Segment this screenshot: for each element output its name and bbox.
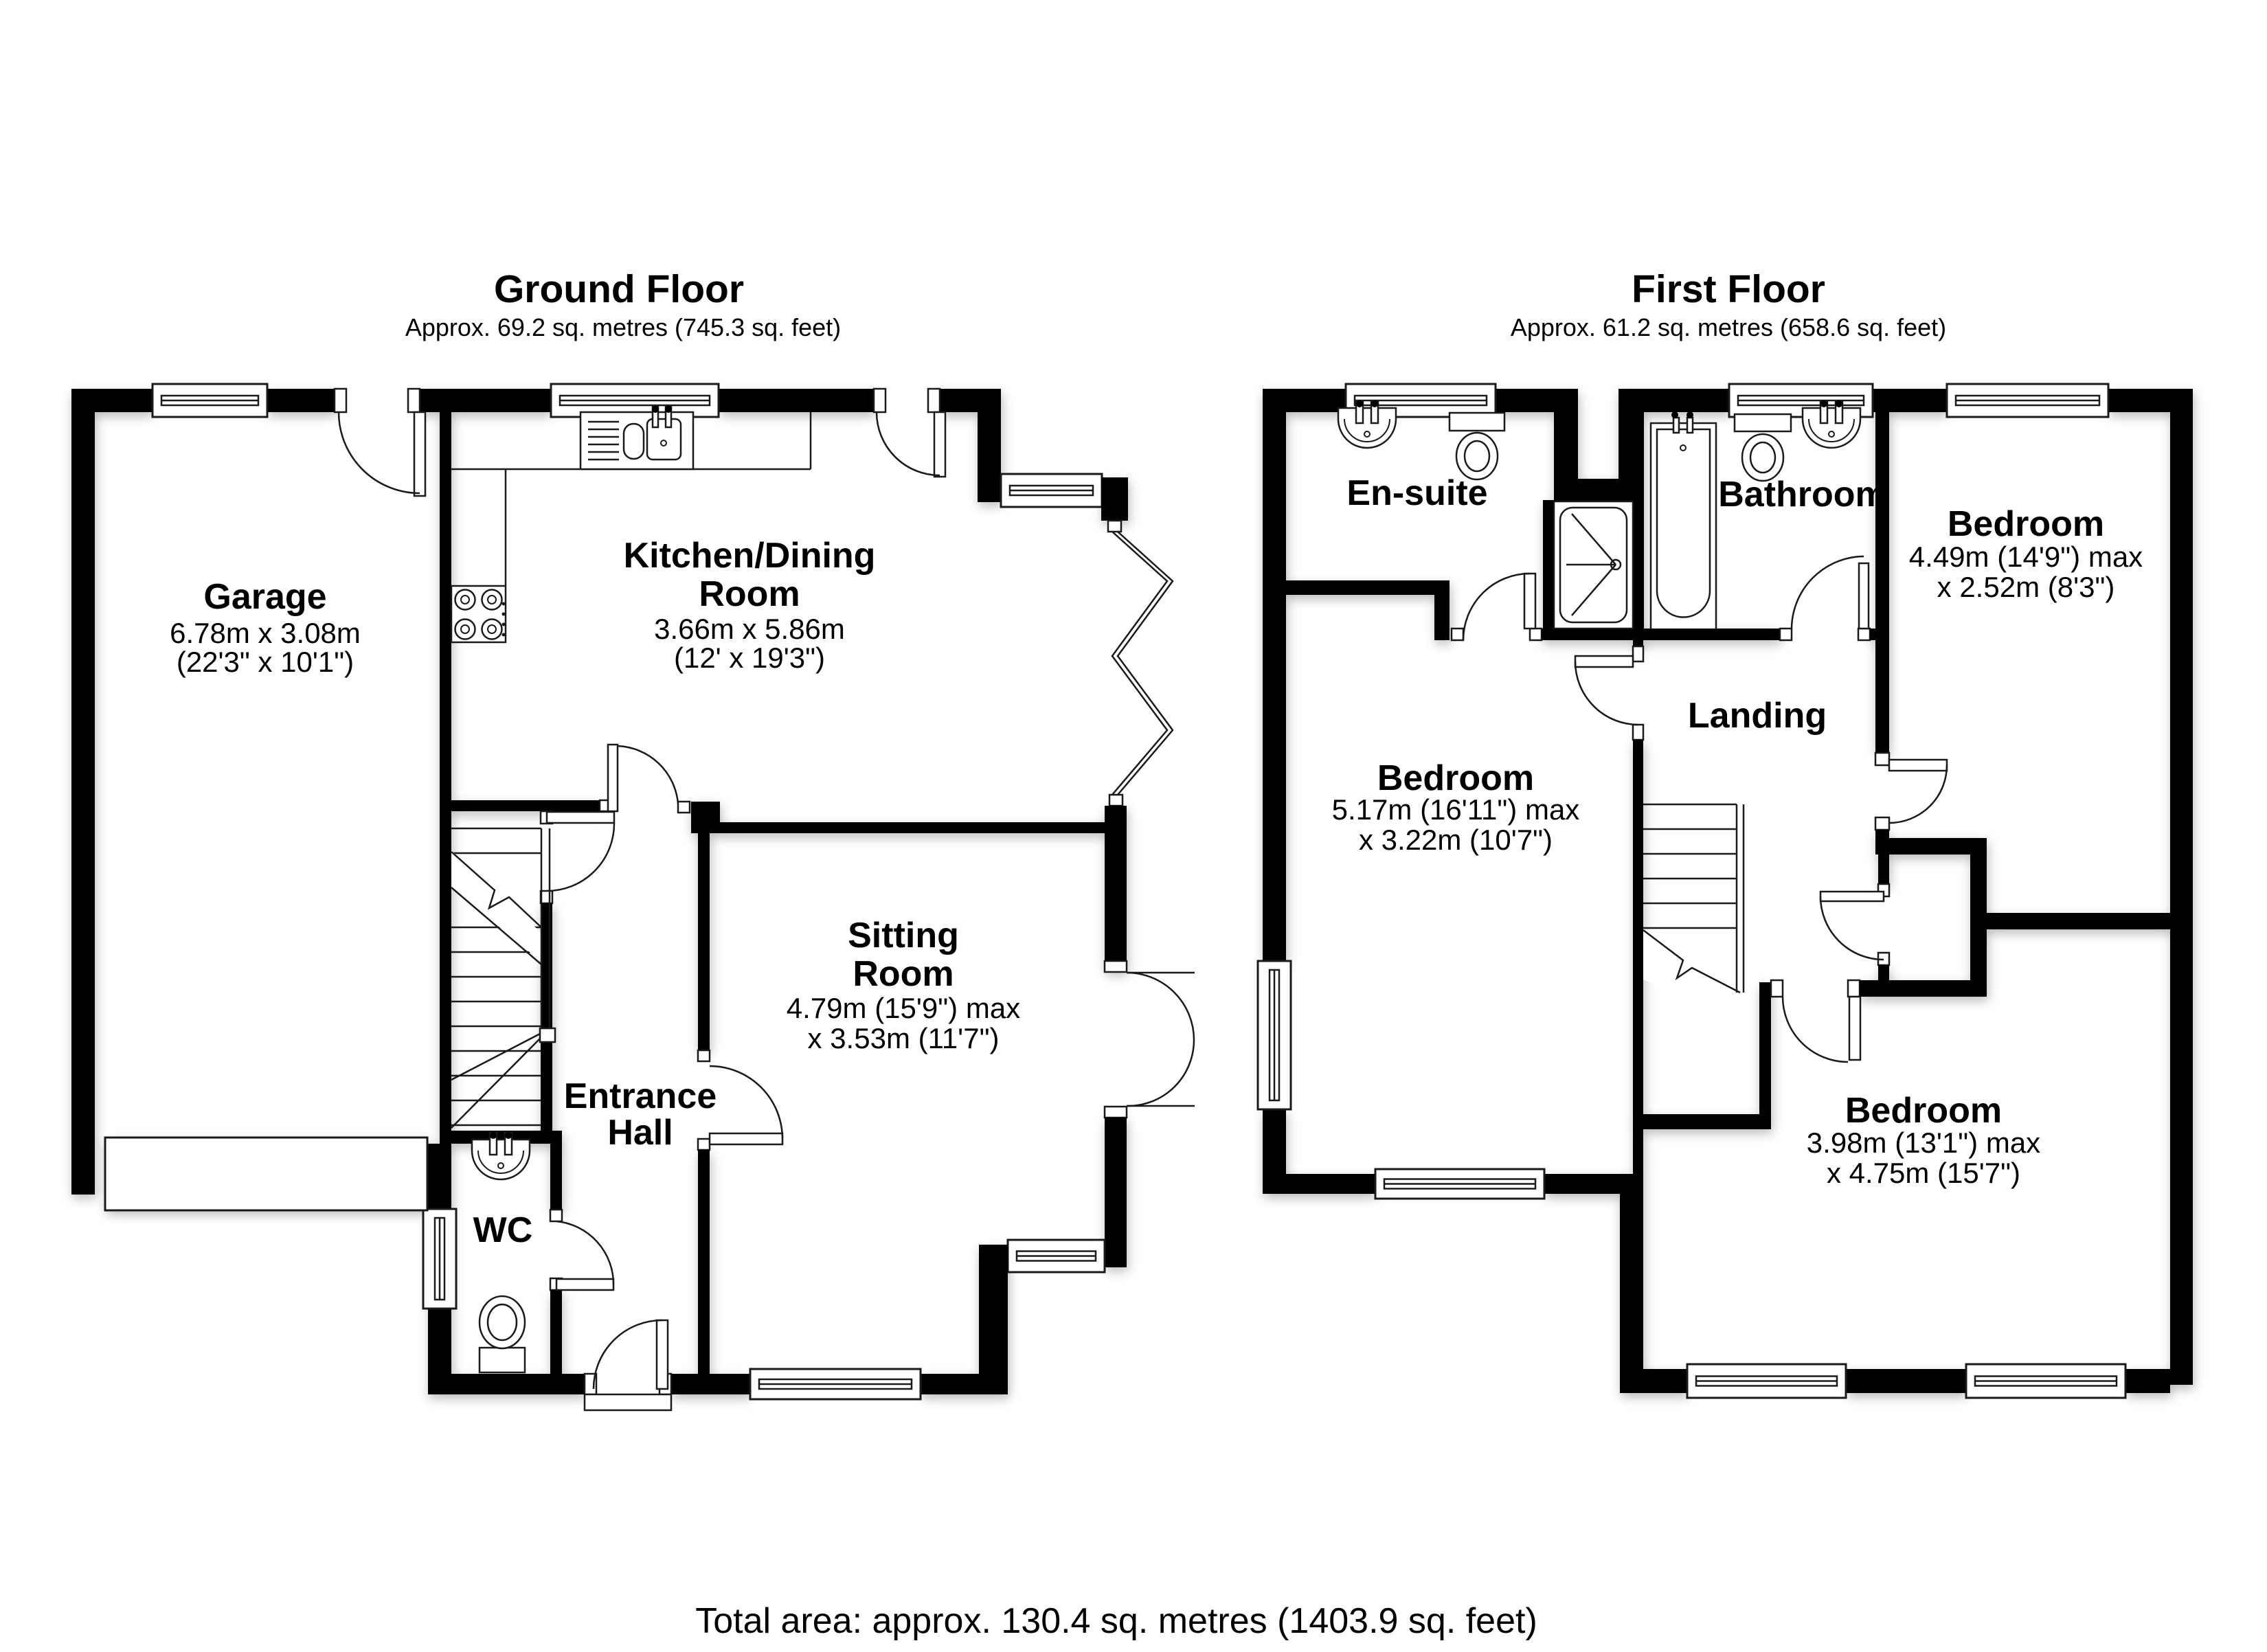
- svg-text:En-suite: En-suite: [1346, 473, 1487, 513]
- svg-text:x 2.52m (8'3"): x 2.52m (8'3"): [1937, 571, 2115, 603]
- svg-text:WC: WC: [473, 1210, 533, 1250]
- svg-text:Bedroom: Bedroom: [1948, 504, 2104, 544]
- svg-text:(12' x 19'3"): (12' x 19'3"): [674, 642, 825, 674]
- svg-text:Room: Room: [853, 954, 954, 994]
- svg-text:Hall: Hall: [607, 1113, 673, 1153]
- svg-text:3.98m (13'1") max: 3.98m (13'1") max: [1807, 1127, 2040, 1159]
- svg-text:Room: Room: [699, 574, 800, 614]
- svg-text:First Floor: First Floor: [1632, 267, 1825, 311]
- svg-text:4.79m (15'9") max: 4.79m (15'9") max: [787, 992, 1020, 1024]
- svg-text:Ground Floor: Ground Floor: [494, 267, 744, 311]
- svg-text:Entrance: Entrance: [564, 1076, 717, 1116]
- svg-text:Landing: Landing: [1688, 696, 1827, 736]
- svg-text:Bathroom: Bathroom: [1718, 475, 1887, 514]
- svg-text:x 3.22m (10'7"): x 3.22m (10'7"): [1359, 824, 1553, 856]
- svg-text:Kitchen/Dining: Kitchen/Dining: [624, 536, 876, 576]
- svg-text:5.17m (16'11") max: 5.17m (16'11") max: [1332, 793, 1580, 826]
- svg-text:Approx. 69.2 sq. metres (745.3: Approx. 69.2 sq. metres (745.3 sq. feet): [405, 313, 841, 341]
- svg-text:Sitting: Sitting: [848, 916, 959, 955]
- svg-text:Bedroom: Bedroom: [1377, 758, 1534, 798]
- svg-text:(22'3" x 10'1"): (22'3" x 10'1"): [177, 646, 354, 678]
- svg-text:x 4.75m (15'7"): x 4.75m (15'7"): [1827, 1157, 2020, 1189]
- svg-text:3.66m x 5.86m: 3.66m x 5.86m: [654, 613, 845, 645]
- svg-text:Total area: approx. 130.4 sq.: Total area: approx. 130.4 sq. metres (14…: [695, 1601, 1537, 1641]
- svg-text:6.78m x 3.08m: 6.78m x 3.08m: [170, 617, 361, 649]
- svg-text:Garage: Garage: [203, 577, 326, 617]
- svg-text:Bedroom: Bedroom: [1845, 1091, 2002, 1131]
- svg-text:4.49m (14'9") max: 4.49m (14'9") max: [1909, 541, 2143, 573]
- svg-text:x 3.53m (11'7"): x 3.53m (11'7"): [808, 1022, 1000, 1054]
- svg-text:Approx. 61.2 sq. metres (658.6: Approx. 61.2 sq. metres (658.6 sq. feet): [1511, 313, 1946, 341]
